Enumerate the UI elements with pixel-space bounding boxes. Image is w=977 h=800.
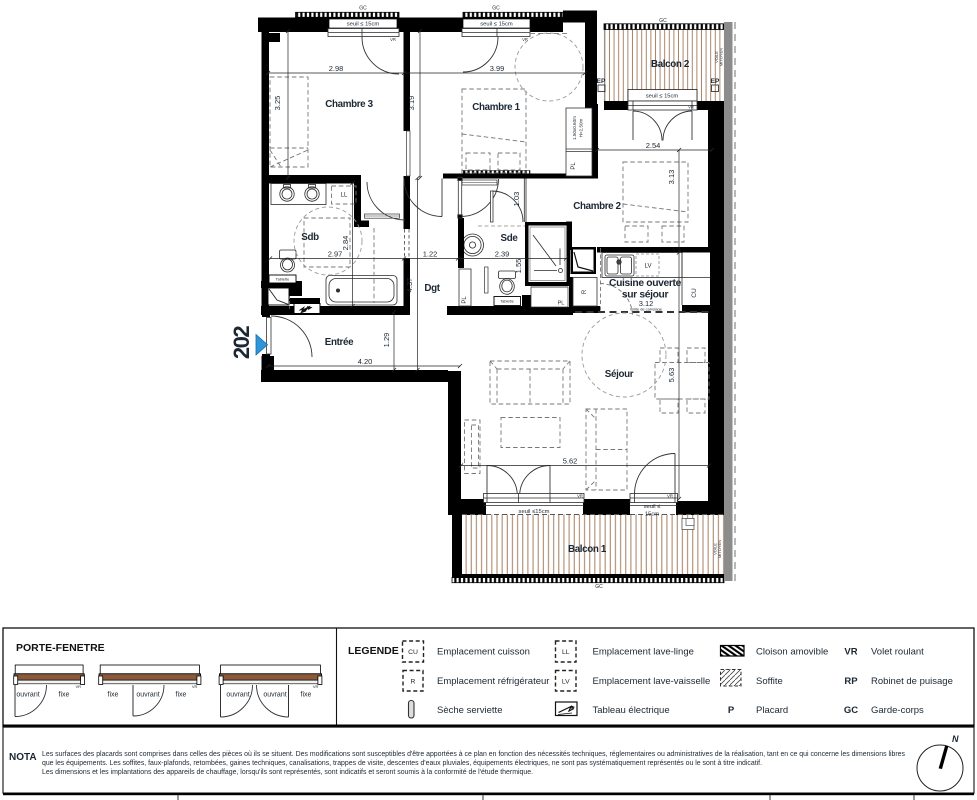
svg-text:ouvrant: ouvrant [263, 692, 286, 699]
svg-text:R: R [582, 289, 588, 294]
svg-text:GC: GC [595, 584, 603, 590]
svg-text:ouvrant: ouvrant [16, 692, 39, 699]
svg-text:202: 202 [229, 326, 254, 359]
svg-text:seuil ≤: seuil ≤ [644, 504, 661, 510]
svg-text:seuil ≤ 15cm: seuil ≤ 15cm [347, 22, 380, 28]
svg-text:2.54: 2.54 [646, 141, 661, 150]
svg-text:fixe: fixe [176, 692, 187, 699]
svg-text:CU: CU [691, 288, 698, 298]
svg-text:1.03: 1.03 [512, 192, 521, 207]
svg-text:Tablette: Tablette [276, 277, 290, 282]
svg-text:LV: LV [645, 264, 652, 270]
svg-text:VR: VR [390, 37, 396, 42]
svg-text:Séjour: Séjour [605, 369, 634, 380]
svg-text:seuil ≤ 15cm: seuil ≤ 15cm [646, 94, 679, 100]
svg-text:N: N [952, 734, 959, 744]
svg-text:GC: GC [492, 6, 500, 12]
svg-text:VR: VR [667, 494, 673, 499]
svg-text:Balcon 1: Balcon 1 [568, 544, 607, 555]
svg-text:Les surfaces des placards sont: Les surfaces des placards sont comprises… [42, 751, 906, 758]
svg-text:3.13: 3.13 [667, 170, 676, 185]
svg-text:VR: VR [577, 494, 583, 499]
svg-text:3.25: 3.25 [273, 96, 282, 111]
svg-text:GC: GC [659, 18, 667, 24]
svg-text:Sèche serviette: Sèche serviette [437, 705, 502, 716]
svg-text:PL: PL [558, 301, 565, 307]
svg-text:Emplacement lave-vaisselle: Emplacement lave-vaisselle [593, 676, 711, 687]
svg-text:Entrée: Entrée [325, 337, 354, 348]
svg-text:Placard: Placard [756, 705, 788, 716]
svg-text:VR: VR [313, 684, 319, 689]
svg-text:Tableau électrique: Tableau électrique [593, 705, 670, 716]
svg-text:fixe: fixe [108, 692, 119, 699]
svg-text:PORTE-FENETRE: PORTE-FENETRE [16, 642, 105, 654]
svg-text:Soffite: Soffite [756, 676, 783, 687]
svg-text:Les dimensions et les implanta: Les dimensions et les implantations des … [42, 769, 533, 776]
svg-text:limite de carrelage: limite de carrelage [630, 307, 662, 312]
svg-text:5.63: 5.63 [667, 368, 676, 383]
svg-text:4.37: 4.37 [405, 278, 414, 293]
svg-text:Emplacement réfrigérateur: Emplacement réfrigérateur [437, 676, 549, 687]
svg-text:Cuisine ouverte: Cuisine ouverte [609, 278, 682, 289]
svg-text:LEGENDE: LEGENDE [348, 645, 399, 657]
svg-text:VR: VR [522, 37, 528, 42]
svg-text:GC: GC [844, 705, 858, 716]
svg-text:Volet roulant: Volet roulant [871, 647, 924, 658]
svg-text:que les équipements. Les soffi: que les équipements. Les soffites, faux-… [42, 760, 762, 767]
svg-text:4.20: 4.20 [358, 357, 373, 366]
svg-text:5.62: 5.62 [563, 457, 578, 466]
svg-text:Chambre 3: Chambre 3 [325, 99, 373, 110]
svg-text:1.29: 1.29 [382, 333, 391, 348]
svg-text:Emplacement cuisson: Emplacement cuisson [437, 647, 530, 658]
svg-text:Balcon 2: Balcon 2 [651, 59, 690, 70]
svg-text:VR: VR [76, 684, 82, 689]
svg-text:PL: PL [462, 296, 468, 304]
svg-text:1.55: 1.55 [514, 259, 523, 274]
svg-text:R: R [411, 679, 416, 686]
svg-text:VR: VR [688, 105, 694, 110]
svg-text:Robinet de puisage: Robinet de puisage [871, 676, 953, 687]
svg-text:P: P [728, 705, 735, 716]
svg-text:Garde-corps: Garde-corps [871, 705, 924, 716]
svg-text:fixe: fixe [59, 692, 70, 699]
svg-text:Chambre 2: Chambre 2 [573, 201, 621, 212]
svg-text:Dgt: Dgt [424, 283, 440, 294]
svg-text:EP: EP [597, 78, 606, 85]
svg-text:EP: EP [711, 78, 720, 85]
svg-text:seuil ≤ 15cm: seuil ≤ 15cm [480, 22, 513, 28]
svg-text:NOTA: NOTA [9, 752, 37, 763]
svg-text:1.50x0.60m: 1.50x0.60m [572, 116, 577, 140]
svg-text:LV: LV [562, 679, 570, 686]
svg-text:PL: PL [571, 162, 577, 170]
svg-text:2.84: 2.84 [341, 236, 350, 251]
svg-text:2.39: 2.39 [495, 250, 510, 259]
svg-text:MITOYEN: MITOYEN [717, 540, 722, 558]
svg-text:15cm: 15cm [645, 512, 659, 518]
svg-text:3.99: 3.99 [490, 64, 505, 73]
svg-text:VR: VR [844, 647, 857, 658]
svg-text:LL: LL [562, 649, 570, 656]
svg-text:CU: CU [408, 649, 418, 656]
svg-text:fixe: fixe [301, 692, 312, 699]
svg-text:Emplacement lave-linge: Emplacement lave-linge [593, 647, 694, 658]
svg-text:seuil ≤15cm: seuil ≤15cm [519, 509, 550, 515]
svg-text:GC: GC [359, 6, 367, 12]
svg-text:LL: LL [341, 193, 348, 199]
svg-text:MITOYEN: MITOYEN [719, 48, 724, 66]
svg-text:Chambre 1: Chambre 1 [472, 102, 520, 113]
svg-text:ouvrant: ouvrant [136, 692, 159, 699]
svg-text:2.98: 2.98 [329, 64, 344, 73]
svg-text:Sde: Sde [501, 233, 519, 244]
svg-text:1.22: 1.22 [423, 250, 438, 259]
svg-text:3.19: 3.19 [407, 96, 416, 111]
svg-text:Tablette: Tablette [500, 299, 514, 304]
svg-text:RP: RP [844, 676, 858, 687]
svg-text:Cloison amovible: Cloison amovible [756, 647, 828, 658]
svg-text:ouvrant: ouvrant [226, 692, 249, 699]
svg-text:H=2.50m: H=2.50m [579, 118, 584, 137]
svg-text:Sdb: Sdb [301, 232, 319, 243]
svg-text:VR: VR [192, 684, 198, 689]
